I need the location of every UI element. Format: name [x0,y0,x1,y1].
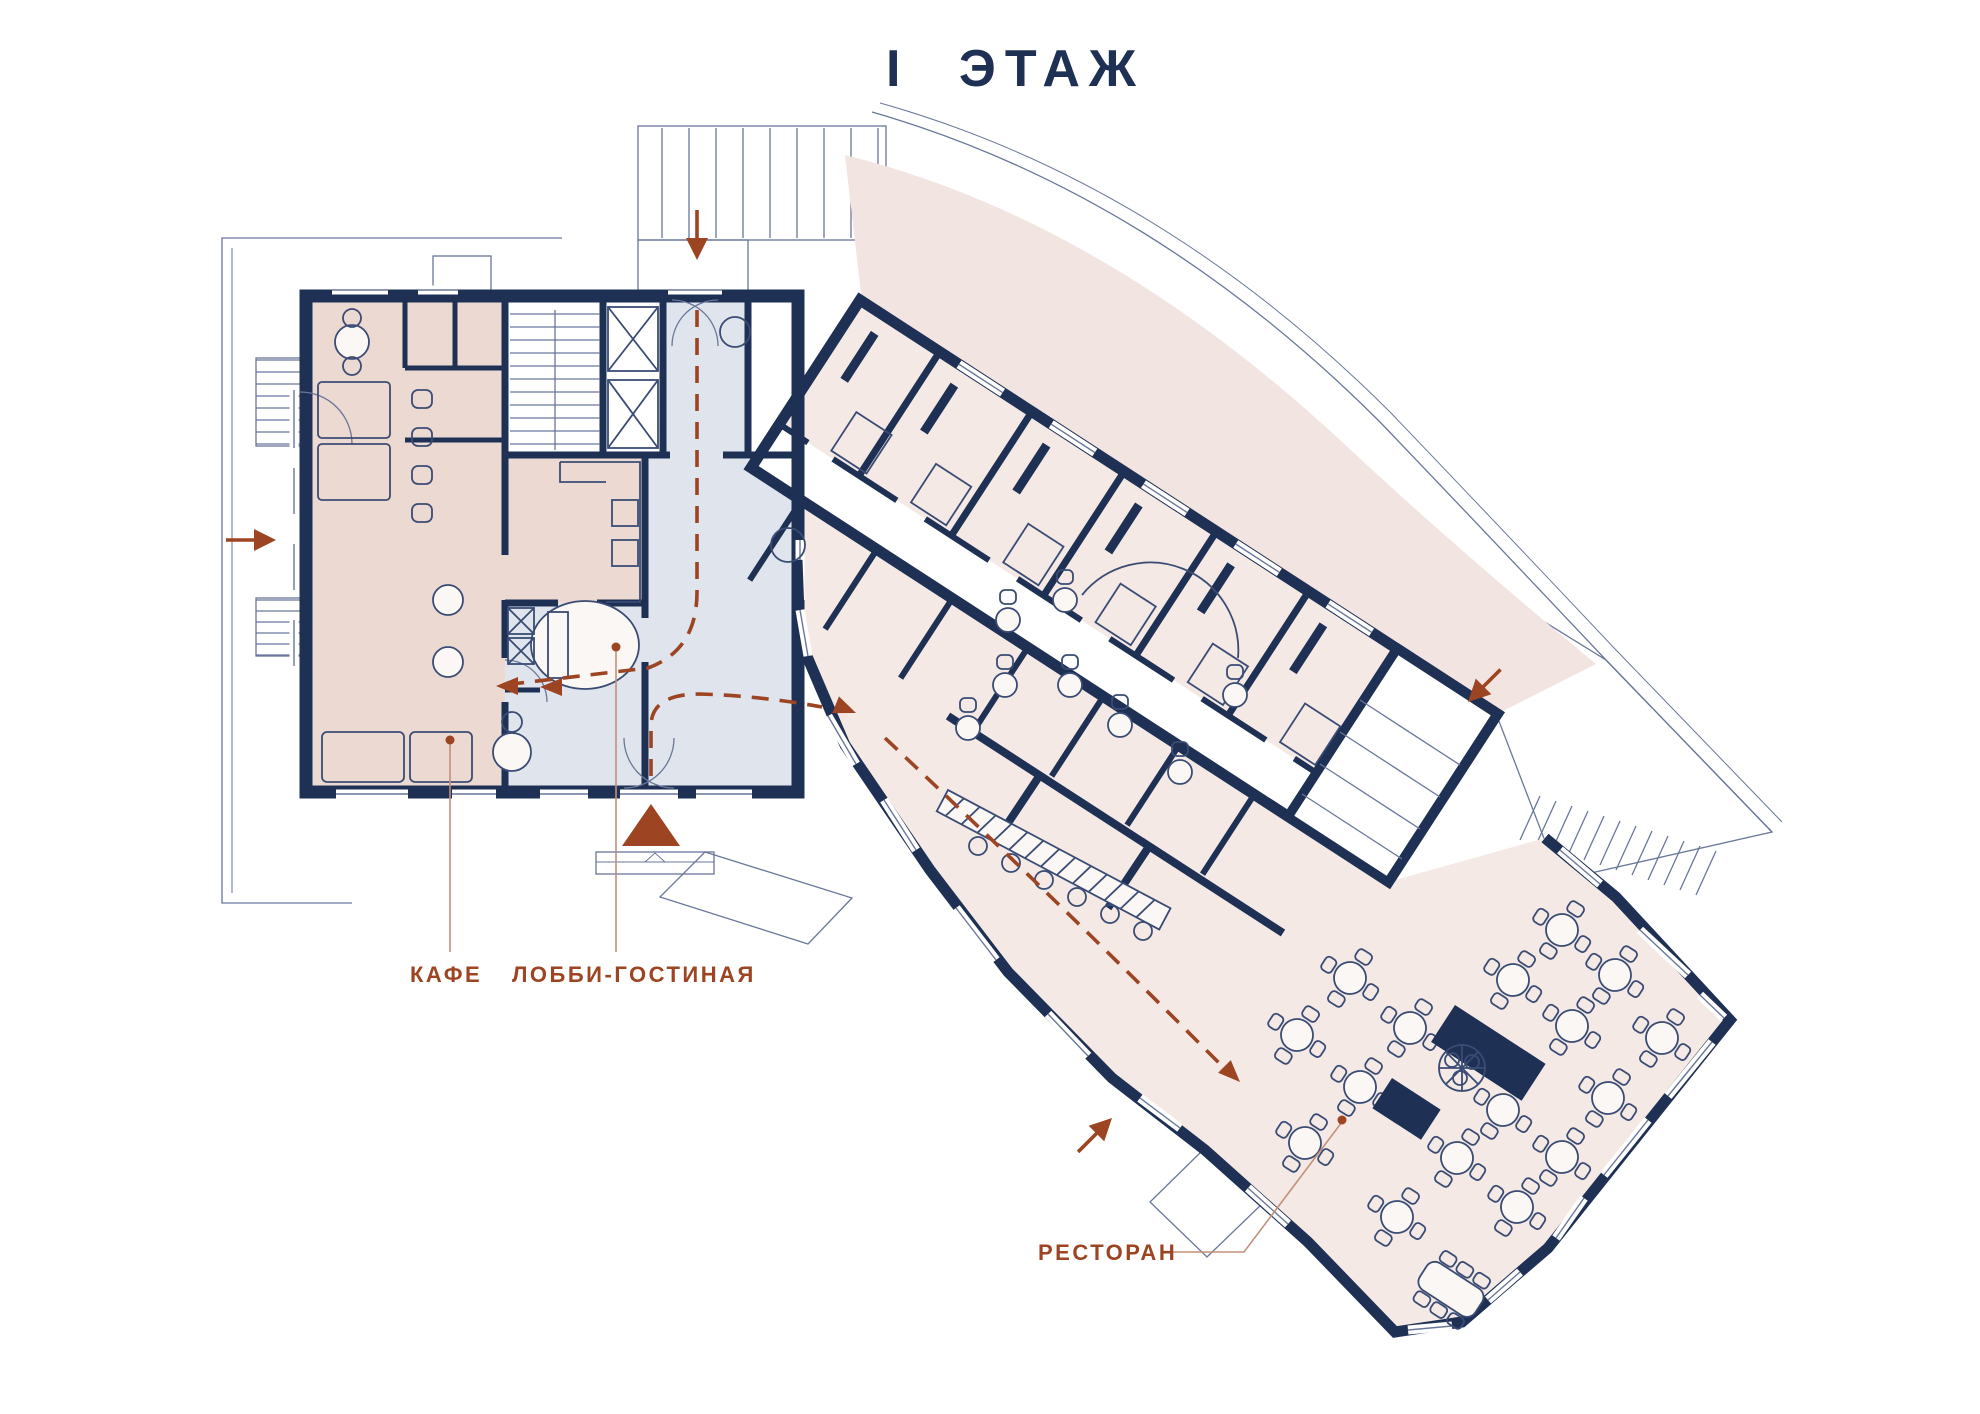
floor-plan-page: { "title": "I ЭТАЖ", "labels": { "cafe":… [0,0,1980,1414]
elevators [605,302,663,455]
restaurant-label: РЕСТОРАН [1038,1240,1177,1265]
page-title: I ЭТАЖ [886,40,1145,98]
cafe-zone [312,302,505,788]
cafe-label: КАФЕ [410,962,482,987]
plant-icon [1439,1045,1485,1091]
main-entrance-triangle-icon [622,804,680,846]
entrance-arrow-left-icon [226,529,276,551]
floor-plan: КАФЕ ЛОББИ-ГОСТИНАЯ РЕСТОРАН I ЭТАЖ [0,0,1980,1414]
lobby-label: ЛОББИ-ГОСТИНАЯ [512,962,756,987]
entrance-arrow-restaurant-icon [1070,1110,1119,1159]
kitchen-zone [505,455,645,603]
lobby-zone [645,455,795,788]
